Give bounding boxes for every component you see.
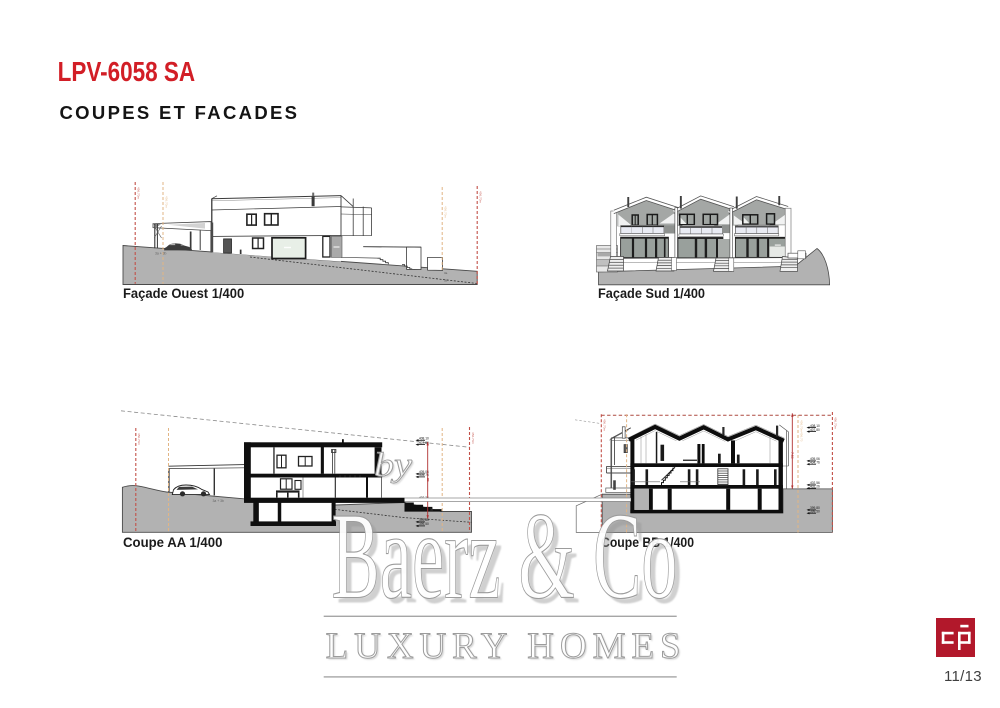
svg-text:Baerz & Co: Baerz & Co	[332, 488, 678, 625]
svg-text:by: by	[374, 447, 413, 484]
svg-text:LUXURY HOMES: LUXURY HOMES	[326, 626, 681, 667]
